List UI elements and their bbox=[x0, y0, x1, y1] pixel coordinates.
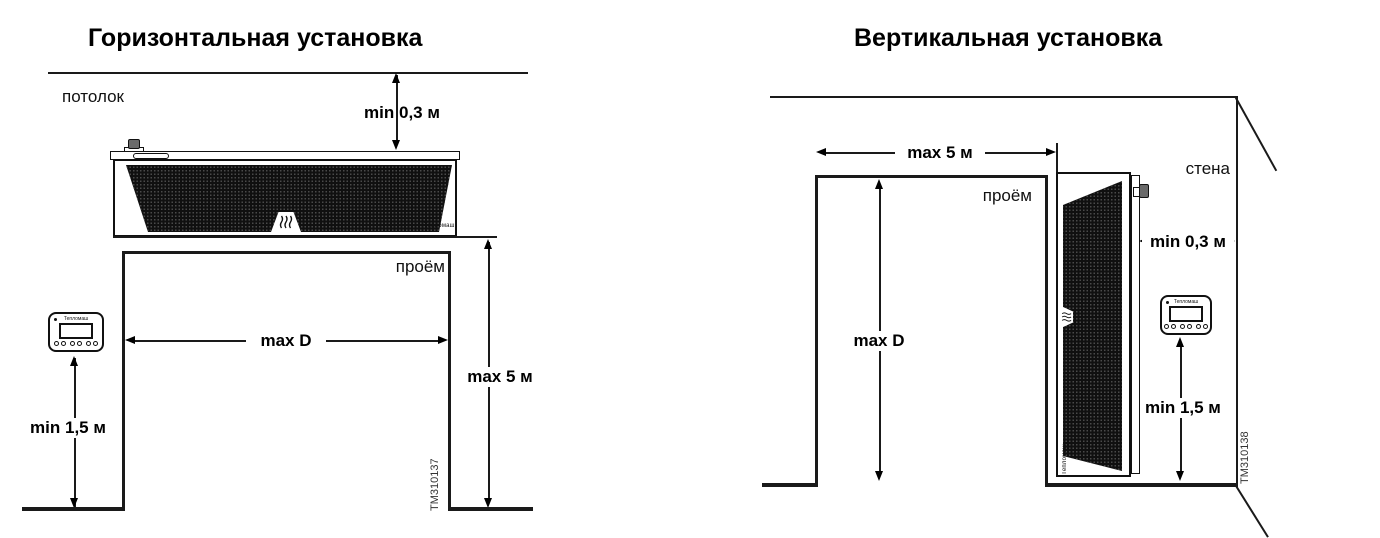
floor-line-left bbox=[762, 483, 818, 487]
dim-opening-width: max D bbox=[246, 331, 326, 351]
remote-led-icon bbox=[54, 318, 57, 321]
remote-button-icon bbox=[1164, 324, 1169, 329]
arrowhead-down-icon bbox=[1176, 471, 1184, 481]
opening-left-wall bbox=[815, 175, 818, 487]
cable-gland-icon bbox=[128, 139, 140, 149]
unit-bottom-reference-line bbox=[113, 236, 497, 238]
floor-line-left bbox=[22, 507, 124, 511]
vertical-installation-diagram: Вертикальная установка стена max 5 м про… bbox=[690, 0, 1380, 537]
remote-buttons bbox=[50, 341, 102, 346]
arrowhead-up-icon bbox=[70, 356, 78, 366]
arrowhead-up-icon bbox=[1176, 337, 1184, 347]
wall-corner-diagonal bbox=[1234, 96, 1277, 171]
arrowhead-up-icon bbox=[484, 239, 492, 249]
arrowhead-up-icon bbox=[875, 179, 883, 189]
right-diagram-title: Вертикальная установка bbox=[854, 24, 1162, 53]
arrowhead-down-icon bbox=[392, 140, 400, 150]
floor-line-right bbox=[1045, 483, 1238, 487]
remote-button-icon bbox=[61, 341, 66, 346]
remote-button-icon bbox=[1203, 324, 1208, 329]
arrowhead-left-icon bbox=[816, 148, 826, 156]
remote-brand-label: Тепломаш bbox=[50, 316, 102, 322]
wall-top-line bbox=[770, 96, 1238, 98]
remote-button-icon bbox=[1180, 324, 1185, 329]
unit-mounting-strip bbox=[1131, 175, 1140, 474]
airflow-icon bbox=[278, 215, 294, 230]
remote-button-icon bbox=[1187, 324, 1192, 329]
dim-controller-height: min 1,5 м bbox=[18, 418, 118, 438]
remote-button-icon bbox=[86, 341, 91, 346]
arrowhead-left-icon bbox=[125, 336, 135, 344]
drawing-id: TM310138 bbox=[1239, 426, 1252, 484]
remote-button-icon bbox=[54, 341, 59, 346]
ceiling-line bbox=[48, 72, 528, 74]
opening-left-wall bbox=[122, 251, 125, 511]
remote-button-icon bbox=[93, 341, 98, 346]
opening-right-wall bbox=[1045, 175, 1048, 487]
arrowhead-down-icon bbox=[875, 471, 883, 481]
dim-opening-width: max 5 м bbox=[895, 143, 985, 163]
opening-top-line bbox=[815, 175, 1048, 178]
arrowhead-up-icon bbox=[392, 73, 400, 83]
unit-brand-label: Тепломаш bbox=[424, 223, 455, 229]
opening-label: проём bbox=[952, 186, 1032, 206]
remote-brand-label: Тепломаш bbox=[1162, 299, 1210, 305]
remote-screen bbox=[1169, 306, 1203, 322]
drawing-id: TM310137 bbox=[429, 453, 442, 511]
remote-controller: Тепломаш bbox=[48, 312, 104, 352]
opening-label: проём bbox=[360, 257, 445, 277]
left-diagram-title: Горизонтальная установка bbox=[88, 24, 422, 53]
opening-top-line bbox=[122, 251, 451, 254]
remote-led-icon bbox=[1166, 301, 1169, 304]
opening-right-wall bbox=[448, 251, 451, 511]
airflow-icon bbox=[1060, 311, 1074, 323]
remote-controller: Тепломаш bbox=[1160, 295, 1212, 335]
unit-intake-grille bbox=[1061, 177, 1125, 474]
dim-opening-height: max D bbox=[848, 331, 910, 351]
remote-button-icon bbox=[70, 341, 75, 346]
dim-ceiling-clearance: min 0,3 м bbox=[356, 103, 448, 123]
floor-line-right bbox=[448, 507, 533, 511]
remote-button-icon bbox=[1171, 324, 1176, 329]
floor-corner-diagonal bbox=[1234, 484, 1269, 538]
unit-brand-label: Тепломаш bbox=[1062, 444, 1068, 475]
arrowhead-right-icon bbox=[1046, 148, 1056, 156]
dim-extension-line bbox=[1056, 143, 1058, 172]
wall-line bbox=[1236, 96, 1238, 487]
dim-controller-height: min 1,5 м bbox=[1145, 398, 1217, 418]
remote-button-icon bbox=[77, 341, 82, 346]
remote-button-icon bbox=[1196, 324, 1201, 329]
horizontal-installation-diagram: Горизонтальная установка потолок min 0,3… bbox=[0, 0, 690, 537]
remote-screen bbox=[59, 323, 93, 339]
dim-opening-height: max 5 м bbox=[452, 367, 548, 387]
arrowhead-right-icon bbox=[438, 336, 448, 344]
wall-label: стена bbox=[1168, 159, 1230, 179]
remote-buttons bbox=[1162, 324, 1210, 329]
dim-wall-clearance: min 0,3 м bbox=[1142, 232, 1234, 252]
ceiling-label: потолок bbox=[62, 87, 124, 107]
cable-gland-icon bbox=[1139, 184, 1149, 198]
